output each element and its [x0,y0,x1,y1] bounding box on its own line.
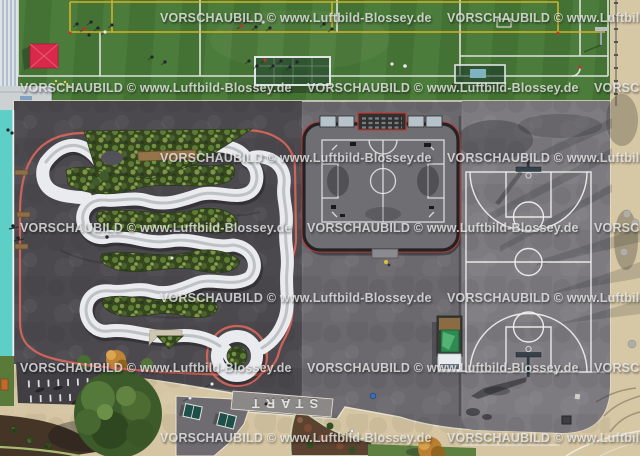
aerial-photo: START [0,0,640,456]
entrance-ramp [372,249,398,258]
storage-box [358,113,406,130]
watermark: VORSCHAUBILD © www.Luftbild-Blossey.de [447,151,640,165]
drain-grate [562,416,571,424]
watermark: VORSCHAUBILD © www.Luftbild-Blossey.de [447,291,640,305]
blue-object [370,393,376,399]
worker-hi-vis [384,260,388,264]
watermark: VORSCHAUBILD © www.Luftbild-Blossey.de [594,81,640,95]
watermark: VORSCHAUBILD © www.Luftbild-Blossey.de [594,221,640,235]
building-roof [0,0,18,86]
start-label: START [246,396,318,411]
goal-sign [470,69,486,78]
watermark: VORSCHAUBILD © www.Luftbild-Blossey.de [20,81,292,95]
canopy-tent [22,44,58,70]
watermark: VORSCHAUBILD © www.Luftbild-Blossey.de [160,431,432,445]
watermark: VORSCHAUBILD © www.Luftbild-Blossey.de [160,11,432,25]
watermark: VORSCHAUBILD © www.Luftbild-Blossey.de [160,291,432,305]
waste-bin [1,379,8,390]
watermark: VORSCHAUBILD © www.Luftbild-Blossey.de [307,81,579,95]
watermark: VORSCHAUBILD © www.Luftbild-Blossey.de [594,361,640,375]
watermark: VORSCHAUBILD © www.Luftbild-Blossey.de [307,361,579,375]
watermark: VORSCHAUBILD © www.Luftbild-Blossey.de [20,221,292,235]
watermark: VORSCHAUBILD © www.Luftbild-Blossey.de [307,221,579,235]
teal-track-lane [0,110,14,356]
watermark: VORSCHAUBILD © www.Luftbild-Blossey.de [447,11,640,25]
cage-court [303,113,460,258]
watermark: VORSCHAUBILD © www.Luftbild-Blossey.de [20,361,292,375]
watermark: VORSCHAUBILD © www.Luftbild-Blossey.de [447,431,640,445]
watermark: VORSCHAUBILD © www.Luftbild-Blossey.de [160,151,432,165]
